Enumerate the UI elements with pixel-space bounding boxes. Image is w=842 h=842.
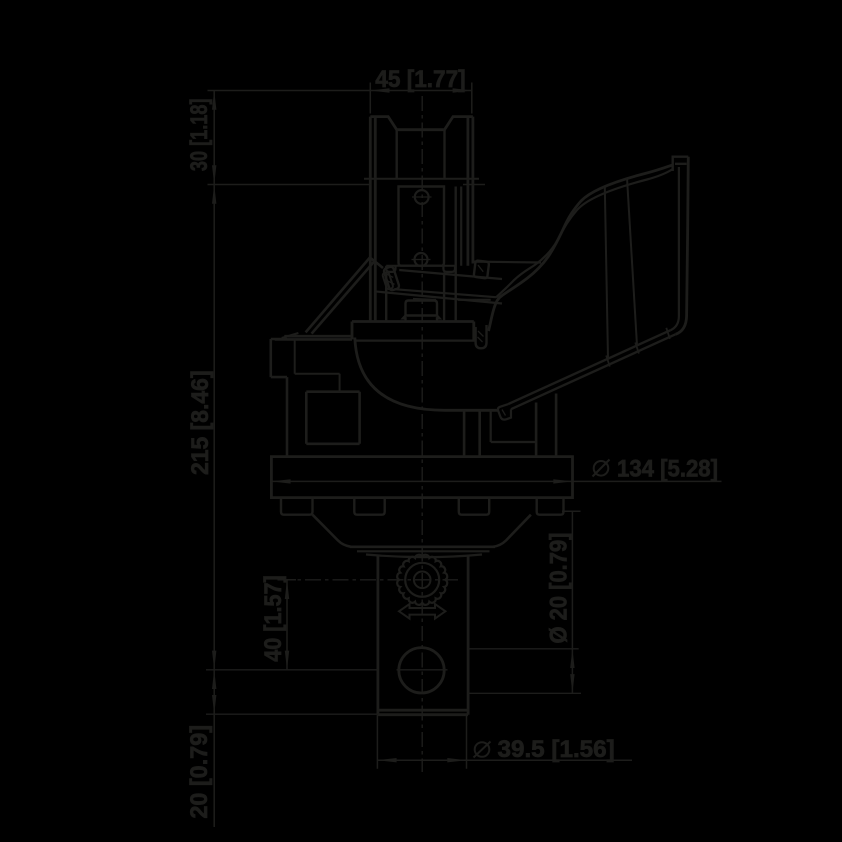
svg-text:215 [8.46]: 215 [8.46]	[187, 370, 214, 475]
svg-text:39.5 [1.56]: 39.5 [1.56]	[498, 736, 615, 763]
svg-text:20 [0.79]: 20 [0.79]	[186, 725, 213, 819]
svg-text:30 [1.18]: 30 [1.18]	[186, 99, 213, 172]
svg-text:134 [5.28]: 134 [5.28]	[617, 456, 718, 483]
svg-text:40 [1.57]: 40 [1.57]	[260, 575, 287, 662]
svg-text:Ø 20 [0.79]: Ø 20 [0.79]	[546, 533, 573, 644]
svg-text:45 [1.77]: 45 [1.77]	[375, 66, 465, 93]
